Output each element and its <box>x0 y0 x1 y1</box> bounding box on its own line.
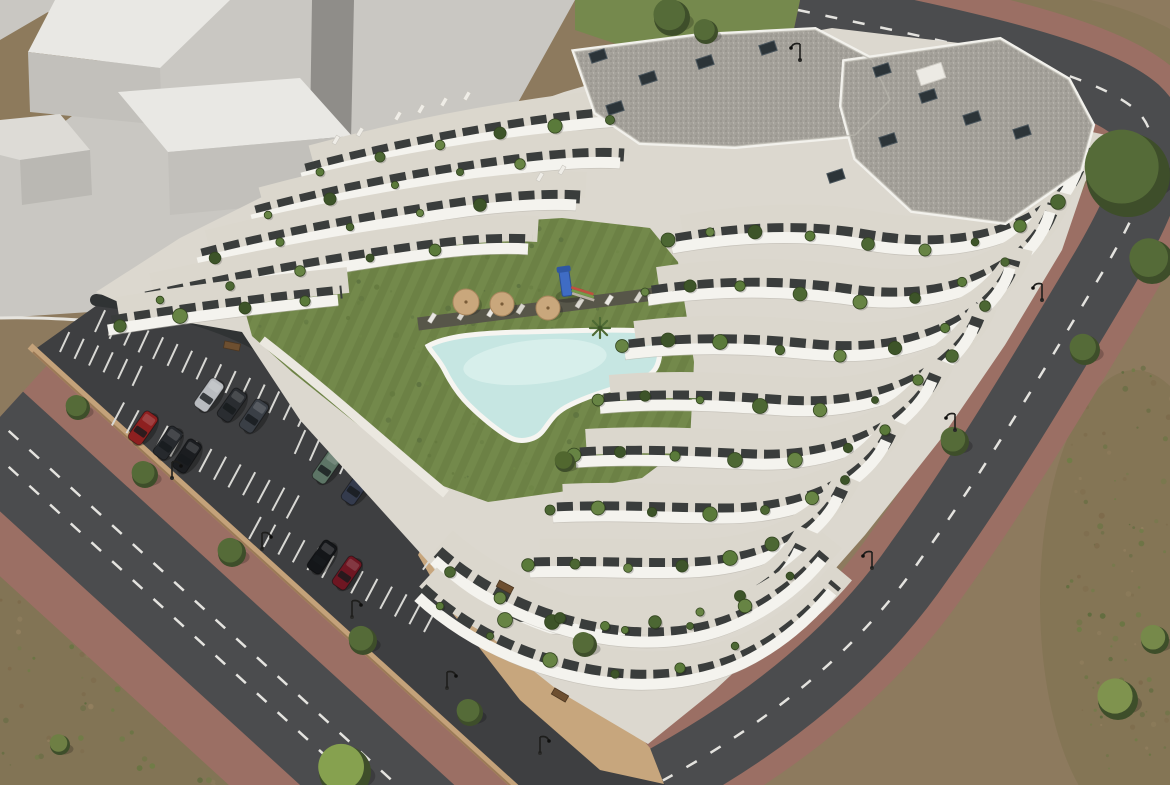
ground-speckle <box>1166 524 1168 526</box>
ground-speckle <box>484 290 486 292</box>
balcony-plant <box>316 168 324 176</box>
ground-speckle <box>1164 746 1167 749</box>
balcony-plant <box>703 507 717 521</box>
balcony-plant <box>209 252 221 264</box>
ground-speckle <box>1131 570 1133 572</box>
ground-speckle <box>1139 541 1145 547</box>
balcony-plant <box>728 453 743 468</box>
balcony-plant <box>375 152 385 162</box>
ground-speckle <box>1123 477 1127 481</box>
ground-speckle <box>1135 738 1138 741</box>
balcony-plant <box>919 244 931 256</box>
ground-speckle <box>1106 754 1109 757</box>
ground-speckle <box>343 389 345 391</box>
balcony-plant <box>813 403 826 416</box>
tree-canopy <box>218 538 243 563</box>
ground-speckle <box>1123 549 1126 552</box>
ground-speckle <box>1092 687 1094 689</box>
ground-speckle <box>1097 681 1100 684</box>
ground-speckle <box>1107 451 1111 455</box>
ground-speckle <box>1114 480 1116 482</box>
balcony-plant <box>548 119 562 133</box>
ground-speckle <box>1121 371 1124 374</box>
tree-canopy <box>694 19 715 40</box>
ground-speckle <box>346 316 350 320</box>
ground-speckle <box>115 686 121 692</box>
ground-speckle <box>3 718 9 724</box>
ground-speckle <box>19 704 24 709</box>
ground-speckle <box>299 355 301 357</box>
tree-canopy <box>1129 238 1168 277</box>
balcony-plant <box>640 391 650 401</box>
balcony-plant <box>788 453 803 468</box>
ground-speckle <box>1140 712 1145 717</box>
palm-tree <box>590 318 610 338</box>
balcony-plant <box>971 238 979 246</box>
ground-speckle <box>304 320 309 325</box>
balcony-plant <box>1051 195 1066 210</box>
ground-speckle <box>1129 554 1133 558</box>
balcony-plant <box>494 127 506 139</box>
tree-canopy <box>653 0 685 30</box>
ground-speckle <box>1132 368 1136 372</box>
ground-speckle <box>667 313 670 316</box>
ground-speckle <box>393 332 399 338</box>
balcony-plant <box>713 335 728 350</box>
ground-speckle <box>18 600 22 604</box>
aerial-render-stage <box>0 0 1170 785</box>
ground-speckle <box>17 617 22 622</box>
lamp-head <box>547 739 551 743</box>
ground-speckle <box>1149 754 1151 756</box>
ground-speckle <box>206 777 212 783</box>
ground-speckle <box>1077 575 1081 579</box>
ground-speckle <box>1074 490 1077 493</box>
ground-speckle <box>142 756 147 761</box>
ground-speckle <box>1149 688 1154 693</box>
balcony-plant <box>753 399 768 414</box>
ground-speckle <box>428 454 432 458</box>
ground-speckle <box>1083 586 1089 592</box>
ground-speckle <box>80 705 86 711</box>
ground-speckle <box>47 739 50 742</box>
balcony-plant <box>805 491 818 504</box>
ground-speckle <box>1151 380 1157 386</box>
balcony-plant <box>616 340 629 353</box>
balcony-plant <box>786 572 794 580</box>
ground-speckle <box>1129 524 1131 526</box>
ground-speckle <box>2 752 5 755</box>
ground-speckle <box>1122 386 1128 392</box>
ground-speckle <box>84 702 86 704</box>
ground-speckle <box>359 296 364 301</box>
ground-speckle <box>1163 436 1168 441</box>
ground-speckle <box>1108 768 1110 770</box>
ground-speckle <box>137 765 143 771</box>
balcony-plant <box>555 613 566 624</box>
balcony-plant <box>300 296 310 306</box>
ground-speckle <box>1165 711 1170 716</box>
ground-speckle <box>525 462 527 464</box>
balcony-plant <box>391 181 398 188</box>
ground-speckle <box>16 630 21 635</box>
ground-speckle <box>32 657 35 660</box>
ground-speckle <box>480 440 484 444</box>
tree-canopy <box>941 427 966 452</box>
tree-canopy <box>132 461 155 484</box>
balcony-plant <box>957 277 966 286</box>
ground-speckle <box>616 250 619 253</box>
ground-speckle <box>1091 589 1095 593</box>
balcony-plant <box>840 475 849 484</box>
tree-canopy <box>457 699 480 722</box>
balcony-plant <box>738 599 752 613</box>
balcony-plant <box>940 323 949 332</box>
ground-speckle <box>425 381 430 386</box>
ground-speckle <box>359 335 362 338</box>
balcony-plant <box>486 632 493 639</box>
ground-speckle <box>538 289 541 292</box>
balcony-plant <box>226 282 235 291</box>
balcony-plant <box>731 642 739 650</box>
balcony-plant <box>946 350 959 363</box>
ground-speckle <box>1100 716 1103 719</box>
balcony-plant <box>834 350 846 362</box>
ground-speckle <box>452 472 455 475</box>
ground-speckle <box>81 677 83 679</box>
ground-speckle <box>1110 645 1112 647</box>
ground-speckle <box>18 646 22 650</box>
ground-speckle <box>1070 579 1074 583</box>
balcony-plant <box>649 616 662 629</box>
balcony-plant <box>913 375 924 386</box>
tree-canopy <box>1085 130 1159 204</box>
balcony-plant <box>684 280 696 292</box>
ground-speckle <box>559 237 564 242</box>
ground-speckle <box>1066 585 1069 588</box>
balcony-plant <box>445 567 456 578</box>
ground-speckle <box>1076 619 1082 625</box>
balcony-plant <box>592 394 604 406</box>
ground-speckle <box>411 315 414 318</box>
ground-speckle <box>529 286 533 290</box>
ground-speckle <box>1136 427 1138 429</box>
balcony-plant <box>621 626 628 633</box>
ground-speckle <box>1084 500 1088 504</box>
ground-speckle <box>485 255 490 260</box>
balcony-plant <box>723 551 738 566</box>
balcony-plant <box>324 193 336 205</box>
ground-speckle <box>1067 458 1073 464</box>
balcony-plant <box>670 451 680 461</box>
balcony-plant <box>570 559 580 569</box>
ground-speckle <box>418 351 420 353</box>
ground-speckle <box>1139 529 1143 533</box>
ground-speckle <box>1082 709 1084 711</box>
tree-canopy <box>573 632 594 653</box>
ground-speckle <box>567 439 572 444</box>
balcony-plant <box>888 341 901 354</box>
balcony-plant <box>614 446 625 457</box>
lamp-head <box>1031 286 1035 290</box>
ground-speckle <box>1077 627 1082 632</box>
ground-speckle <box>1088 613 1092 617</box>
ground-speckle <box>1114 498 1116 500</box>
balcony-plant <box>276 238 284 246</box>
ground-speckle <box>1084 675 1088 679</box>
ground-speckle <box>1094 543 1100 549</box>
ground-speckle <box>573 412 579 418</box>
ground-speckle <box>111 708 114 711</box>
balcony-plant <box>295 266 306 277</box>
lamp-head <box>944 416 948 420</box>
ground-speckle <box>357 301 361 305</box>
lamp-head <box>861 554 865 558</box>
aerial-render <box>0 0 1170 785</box>
balcony-plant <box>429 244 441 256</box>
balcony-plant <box>1014 220 1027 233</box>
ground-speckle <box>472 423 474 425</box>
balcony-plant <box>843 443 852 452</box>
balcony-plant <box>1001 258 1009 266</box>
ground-speckle <box>89 704 93 708</box>
ground-speckle <box>1112 564 1115 567</box>
tree-canopy <box>1070 334 1096 360</box>
balcony-plant <box>605 115 614 124</box>
balcony-plant <box>515 159 526 170</box>
balcony-plant <box>647 507 656 516</box>
balcony-plant <box>765 537 779 551</box>
balcony-plant <box>611 670 619 678</box>
ground-speckle <box>1080 660 1084 664</box>
ground-speckle <box>91 678 97 684</box>
ground-speckle <box>1084 433 1088 437</box>
ground-speckle <box>1139 680 1143 684</box>
parasol-pole <box>500 302 503 305</box>
ground-speckle <box>1079 477 1082 480</box>
ground-speckle <box>413 347 415 349</box>
ground-speckle <box>1126 591 1132 597</box>
tree-canopy <box>349 626 374 651</box>
ground-speckle <box>80 749 84 753</box>
ground-speckle <box>513 467 516 470</box>
tree-canopy <box>1097 678 1132 713</box>
ground-speckle <box>1097 631 1101 635</box>
ground-speckle <box>1132 526 1135 529</box>
ground-speckle <box>428 337 432 341</box>
balcony-plant <box>264 211 272 219</box>
balcony-plant <box>545 505 555 515</box>
ground-speckle <box>1124 659 1127 662</box>
palm-crown <box>598 326 603 331</box>
balcony-plant <box>696 396 704 404</box>
lamp-head <box>789 46 793 50</box>
lamp-head <box>269 535 273 539</box>
ground-speckle <box>1090 724 1092 726</box>
ground-speckle <box>82 692 86 696</box>
ground-speckle <box>35 755 40 760</box>
tree-canopy <box>1141 625 1166 650</box>
ground-speckle <box>1150 375 1152 377</box>
ground-speckle <box>1147 677 1152 682</box>
tree-canopy <box>66 395 87 416</box>
ground-speckle <box>1084 531 1090 537</box>
ground-speckle <box>1071 444 1073 446</box>
ground-speckle <box>10 764 12 766</box>
ground-speckle <box>445 306 451 312</box>
ground-speckle <box>1141 366 1146 371</box>
balcony-plant <box>880 425 891 436</box>
ground-speckle <box>1101 531 1105 535</box>
ground-speckle <box>1161 479 1167 485</box>
ground-speckle <box>1100 613 1106 619</box>
balcony-plant <box>706 228 715 237</box>
ground-speckle <box>1080 489 1086 495</box>
balcony-plant <box>761 506 770 515</box>
balcony-plant <box>686 622 693 629</box>
balcony-plant <box>498 613 513 628</box>
ground-speckle <box>525 327 527 329</box>
lamp-head <box>359 603 363 607</box>
balcony-plant <box>173 309 188 324</box>
balcony-plant <box>862 238 875 251</box>
balcony-plant <box>748 225 762 239</box>
ground-speckle <box>374 284 379 289</box>
ground-speckle <box>517 284 521 288</box>
ground-speckle <box>491 283 493 285</box>
ground-speckle <box>1145 747 1148 750</box>
balcony-plant <box>456 168 463 175</box>
ground-speckle <box>464 477 466 479</box>
balcony-plant <box>600 621 609 630</box>
ground-speckle <box>1164 718 1169 723</box>
ground-speckle <box>529 244 534 249</box>
ground-speckle <box>417 438 422 443</box>
balcony-plant <box>494 592 506 604</box>
ground-speckle <box>1146 711 1148 713</box>
ground-speckle <box>1163 550 1166 553</box>
ground-speckle <box>28 669 31 672</box>
balcony-plant <box>522 559 535 572</box>
ground-speckle <box>1130 725 1135 730</box>
balcony-plant <box>775 345 784 354</box>
ground-speckle <box>386 417 391 422</box>
balcony-plant <box>641 288 649 296</box>
ground-speckle <box>197 777 203 783</box>
balcony-plant <box>436 602 444 610</box>
balcony-plant <box>661 233 675 247</box>
ground-speckle <box>1094 709 1097 712</box>
balcony-plant <box>910 293 921 304</box>
ground-speckle <box>1097 523 1103 529</box>
balcony-plant <box>853 295 867 309</box>
balcony-plant <box>661 333 675 347</box>
ground-speckle <box>1134 643 1136 645</box>
ground-speckle <box>1146 409 1150 413</box>
balcony-plant <box>416 209 423 216</box>
ground-speckle <box>1102 432 1106 436</box>
balcony-plant <box>543 653 558 668</box>
ground-speckle <box>1113 636 1119 642</box>
balcony-plant <box>591 501 605 515</box>
ground-speckle <box>1108 657 1112 661</box>
ground-speckle <box>390 290 392 292</box>
ground-speckle <box>659 305 662 308</box>
ground-speckle <box>1151 722 1156 727</box>
balcony-plant <box>346 223 354 231</box>
balcony-plant <box>805 231 815 241</box>
ground-speckle <box>1136 612 1141 617</box>
lamp-head <box>454 674 458 678</box>
balcony-plant <box>624 564 633 573</box>
ground-speckle <box>1126 473 1129 476</box>
ground-speckle <box>1154 519 1158 523</box>
tree-canopy <box>555 451 573 469</box>
tree-canopy <box>50 734 68 752</box>
ground-speckle <box>1138 586 1141 589</box>
ground-speckle <box>1100 724 1102 726</box>
ground-speckle <box>1131 594 1134 597</box>
ground-speckle <box>150 763 156 769</box>
balcony-plant <box>676 560 688 572</box>
balcony-plant <box>735 281 745 291</box>
balcony-plant <box>871 396 878 403</box>
balcony-plant <box>114 320 126 332</box>
ground-speckle <box>259 325 262 328</box>
balcony-plant <box>474 199 487 212</box>
ground-speckle <box>426 366 429 369</box>
ground-speckle <box>356 279 360 283</box>
ground-speckle <box>509 318 514 323</box>
ground-speckle <box>8 667 12 671</box>
balcony-plant <box>696 608 704 616</box>
ground-speckle <box>119 736 125 742</box>
ground-speckle <box>390 391 396 397</box>
ground-speckle <box>1103 444 1108 449</box>
ground-speckle <box>1099 513 1105 519</box>
ground-speckle <box>69 644 74 649</box>
ground-speckle <box>378 358 383 363</box>
ground-speckle <box>529 485 534 490</box>
ground-speckle <box>1120 621 1126 627</box>
balcony-plant <box>366 254 374 262</box>
ground-speckle <box>78 735 84 741</box>
balcony-plant <box>675 663 685 673</box>
parasol-pole <box>464 300 467 303</box>
balcony-plant <box>435 140 445 150</box>
parasol-pole <box>546 306 549 309</box>
balcony-plant <box>980 301 991 312</box>
balcony-plant <box>156 296 164 304</box>
lamp-head <box>179 464 183 468</box>
ground-speckle <box>467 476 469 478</box>
ground-speckle <box>130 730 134 734</box>
balcony-plant <box>239 302 251 314</box>
balcony-plant <box>793 287 807 301</box>
ground-speckle <box>435 441 438 444</box>
ground-speckle <box>416 382 421 387</box>
